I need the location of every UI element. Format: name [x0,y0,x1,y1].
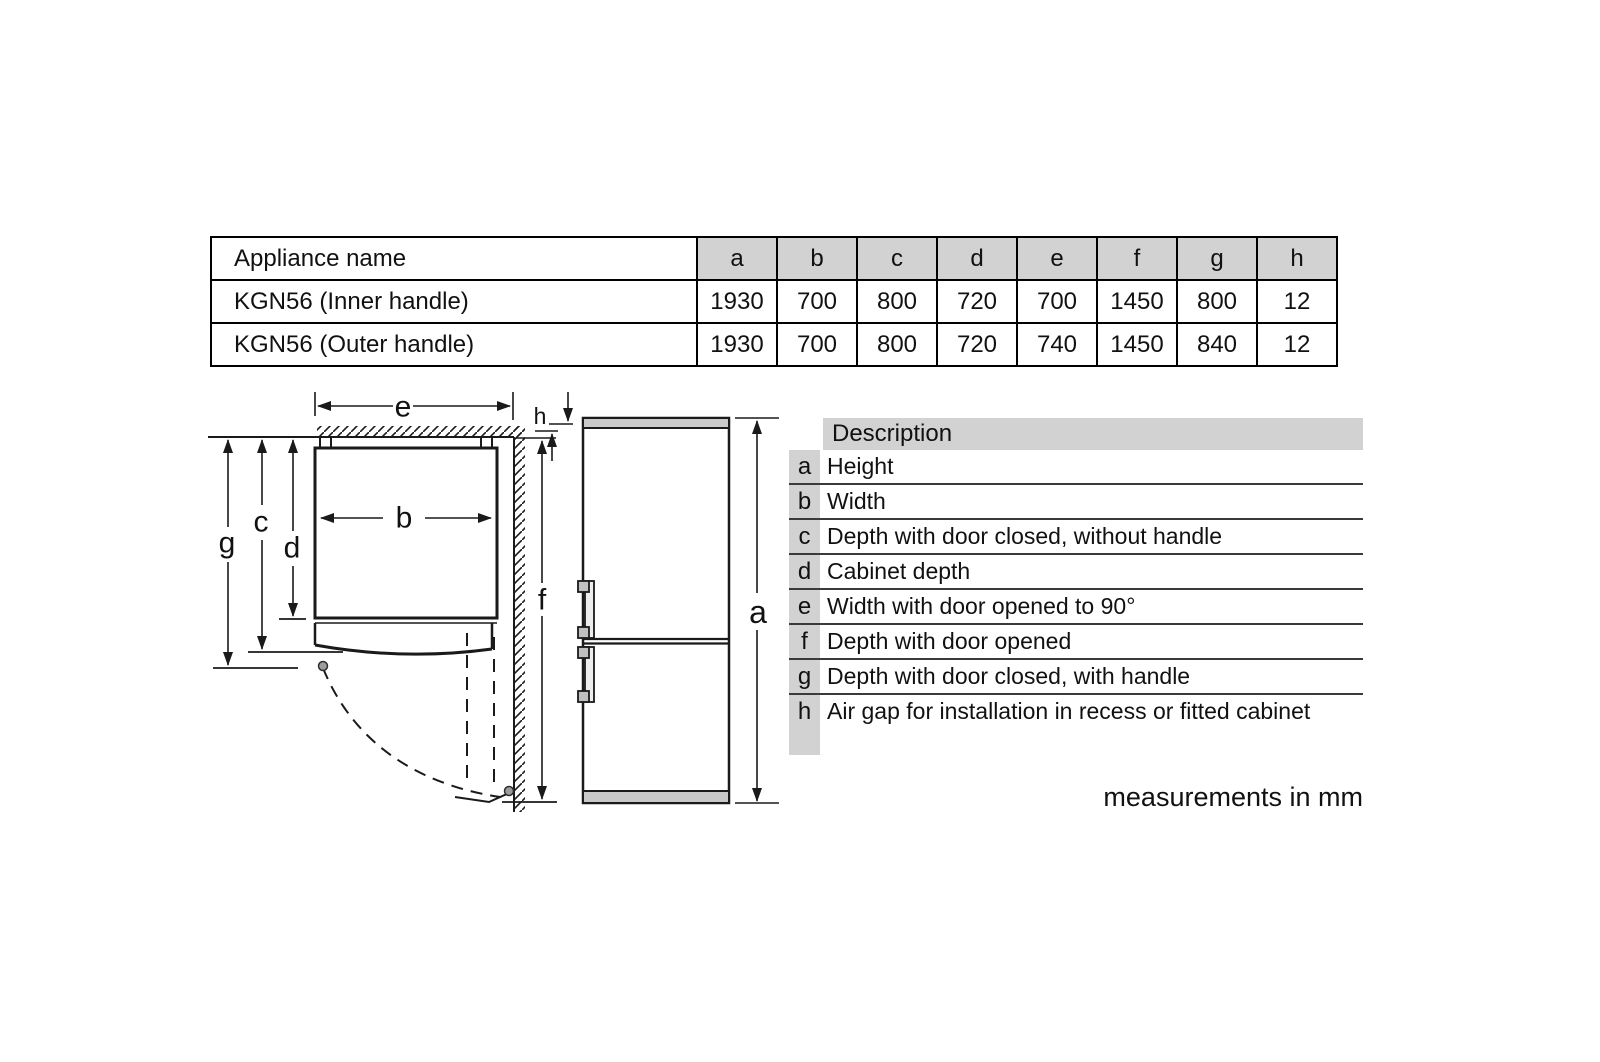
value-cell: 800 [857,280,937,323]
value-cell: 720 [937,323,1017,366]
spec-header-row: Appliance name a b c d e f g h [211,237,1337,280]
dim-label-c: c [254,506,269,539]
fridge-side-view-body [583,418,729,803]
description-header: Description [823,418,1363,450]
description-row-c: c Depth with door closed, without handle [789,520,1363,555]
value-cell: 1450 [1097,323,1177,366]
spec-table: Appliance name a b c d e f g h KGN56 (In… [210,236,1338,367]
description-key: h [789,695,820,728]
spec-row-outer-handle: KGN56 (Outer handle) 1930 700 800 720 74… [211,323,1337,366]
value-cell: 800 [1177,280,1257,323]
value-cell: 1930 [697,280,777,323]
description-text: Width [827,485,886,518]
dimension-diagram: e b g c d f h a [190,375,802,822]
col-header-f: f [1097,237,1177,280]
description-table: Description a Height b Width c Depth wit… [783,418,1363,758]
description-key: g [789,660,820,693]
description-row-d: d Cabinet depth [789,555,1363,590]
col-header-g: g [1177,237,1257,280]
col-header-b: b [777,237,857,280]
description-row-a: a Height [789,450,1363,485]
appliance-name-cell: KGN56 (Inner handle) [211,280,697,323]
fridge-bottom-plinth [583,791,729,803]
value-cell: 720 [937,280,1017,323]
value-cell: 700 [777,280,857,323]
value-cell: 800 [857,323,937,366]
dim-d [279,440,306,619]
dim-label-b: b [396,502,413,535]
description-text: Air gap for installation in recess or fi… [827,695,1310,728]
description-key: d [789,555,820,588]
description-key: e [789,590,820,623]
wall-spacer [481,437,492,448]
col-header-e: e [1017,237,1097,280]
lower-door-handle [578,647,594,702]
fridge-door-top-view [315,623,492,654]
handle-closed-marker [319,662,328,671]
description-row-g: g Depth with door closed, with handle [789,660,1363,695]
description-key: f [789,625,820,658]
description-text: Height [827,450,893,483]
top-view [208,392,573,812]
description-row-f: f Depth with door opened [789,625,1363,660]
value-cell: 700 [777,323,857,366]
description-key: c [789,520,820,553]
dim-label-e: e [395,391,412,424]
value-cell: 700 [1017,280,1097,323]
description-text: Width with door opened to 90° [827,590,1135,623]
col-header-d: d [937,237,1017,280]
dim-label-f: f [538,584,547,617]
value-cell: 740 [1017,323,1097,366]
col-header-c: c [857,237,937,280]
dim-label-d: d [284,532,301,565]
value-cell: 12 [1257,323,1337,366]
wall-spacer [320,437,331,448]
upper-door-handle [578,581,594,638]
value-cell: 12 [1257,280,1337,323]
dimension-sheet: Appliance name a b c d e f g h KGN56 (In… [0,0,1600,1062]
door-swing-arc [323,668,500,797]
col-header-h: h [1257,237,1337,280]
handle-open-marker [505,787,514,796]
spec-row-inner-handle: KGN56 (Inner handle) 1930 700 800 720 70… [211,280,1337,323]
value-cell: 1930 [697,323,777,366]
dim-label-a: a [749,594,767,630]
description-row-h: h Air gap for installation in recess or … [789,695,1363,730]
description-key: a [789,450,820,483]
value-cell: 1450 [1097,280,1177,323]
col-header-a: a [697,237,777,280]
description-text: Depth with door opened [827,625,1071,658]
dim-e [315,392,513,420]
dim-label-g: g [219,527,236,560]
fridge-top-trim [583,418,729,428]
dim-f [502,438,557,802]
description-text: Depth with door closed, without handle [827,520,1222,553]
description-key: b [789,485,820,518]
dim-label-h: h [534,403,547,429]
description-text: Depth with door closed, with handle [827,660,1190,693]
description-text: Cabinet depth [827,555,970,588]
value-cell: 840 [1177,323,1257,366]
units-footnote: measurements in mm [1103,782,1363,813]
description-row-e: e Width with door opened to 90° [789,590,1363,625]
appliance-name-cell: KGN56 (Outer handle) [211,323,697,366]
description-row-b: b Width [789,485,1363,520]
appliance-name-header: Appliance name [211,237,697,280]
